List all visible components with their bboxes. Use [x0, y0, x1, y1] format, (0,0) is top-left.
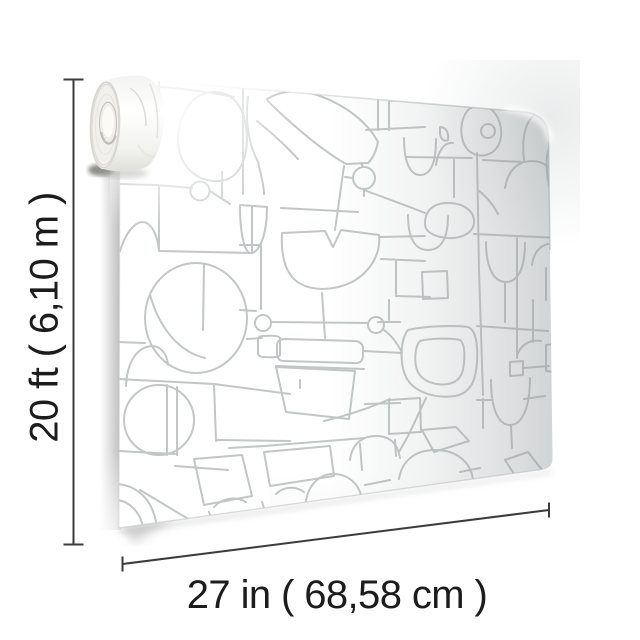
svg-text:27 in ( 68,58 cm ): 27 in ( 68,58 cm ): [187, 573, 487, 617]
svg-text:20 ft ( 6,10 m ): 20 ft ( 6,10 m ): [23, 192, 67, 443]
